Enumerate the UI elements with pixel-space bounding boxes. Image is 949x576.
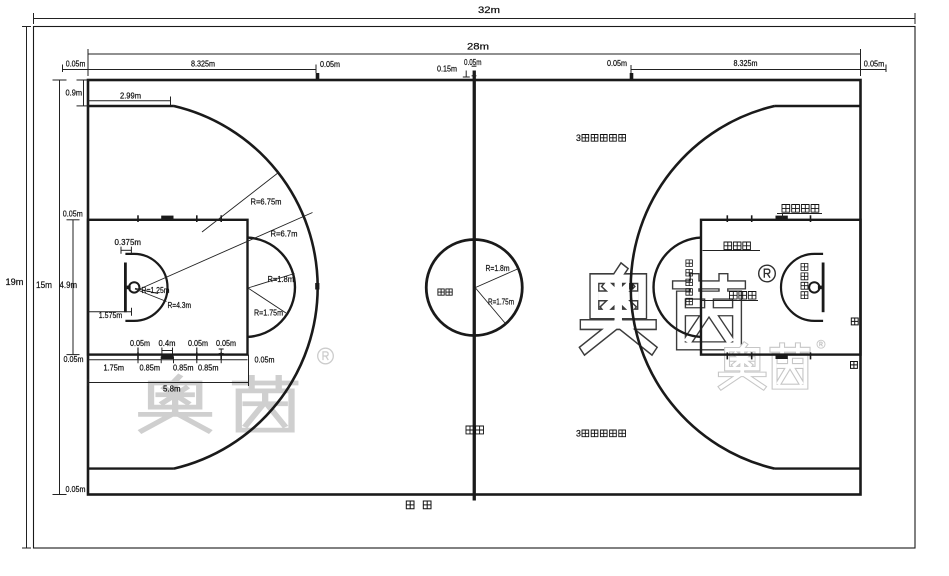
svg-text:0.05m: 0.05m — [607, 58, 627, 68]
svg-text:5.8m: 5.8m — [163, 384, 181, 394]
svg-text:0.05m: 0.05m — [464, 57, 482, 67]
svg-text:4.9m: 4.9m — [60, 280, 78, 290]
svg-text:3: 3 — [576, 133, 581, 143]
svg-text:R=1.75m: R=1.75m — [488, 297, 514, 307]
svg-text:R=1.8m: R=1.8m — [486, 263, 510, 273]
svg-text:R=1.75m: R=1.75m — [254, 308, 283, 318]
svg-text:0.85m: 0.85m — [198, 363, 219, 373]
svg-text:0.4m: 0.4m — [159, 338, 176, 348]
svg-text:0.05m: 0.05m — [216, 338, 236, 348]
svg-text:0.375m: 0.375m — [115, 237, 142, 247]
svg-text:R=1.8m: R=1.8m — [268, 274, 295, 284]
svg-text:3: 3 — [576, 429, 581, 439]
svg-text:0.15m: 0.15m — [437, 64, 457, 74]
svg-text:2.99m: 2.99m — [120, 91, 141, 101]
svg-text:0.05m: 0.05m — [66, 484, 86, 494]
svg-text:0.05m: 0.05m — [63, 209, 83, 219]
svg-text:15m: 15m — [36, 280, 52, 290]
svg-text:0.05m: 0.05m — [130, 338, 150, 348]
svg-text:1.75m: 1.75m — [104, 363, 125, 373]
svg-text:R=4.3m: R=4.3m — [168, 300, 192, 310]
svg-text:R=6.7m: R=6.7m — [271, 229, 298, 239]
svg-text:8.325m: 8.325m — [734, 58, 758, 68]
svg-text:0.85m: 0.85m — [140, 363, 161, 373]
svg-text:28m: 28m — [467, 42, 489, 52]
svg-text:1.575m: 1.575m — [99, 310, 123, 320]
svg-text:19m: 19m — [6, 277, 24, 287]
svg-text:0.05m: 0.05m — [64, 354, 84, 364]
svg-text:0.05m: 0.05m — [188, 338, 208, 348]
svg-text:R=6.75m: R=6.75m — [251, 197, 282, 207]
svg-text:0.05m: 0.05m — [255, 354, 275, 364]
svg-text:0.9m: 0.9m — [66, 87, 83, 97]
svg-text:32m: 32m — [478, 5, 500, 15]
svg-text:8.325m: 8.325m — [191, 58, 215, 68]
svg-text:0.85m: 0.85m — [173, 363, 194, 373]
svg-text:0.05m: 0.05m — [66, 58, 86, 68]
svg-text:0.05m: 0.05m — [864, 58, 885, 68]
svg-text:0.05m: 0.05m — [320, 59, 340, 69]
